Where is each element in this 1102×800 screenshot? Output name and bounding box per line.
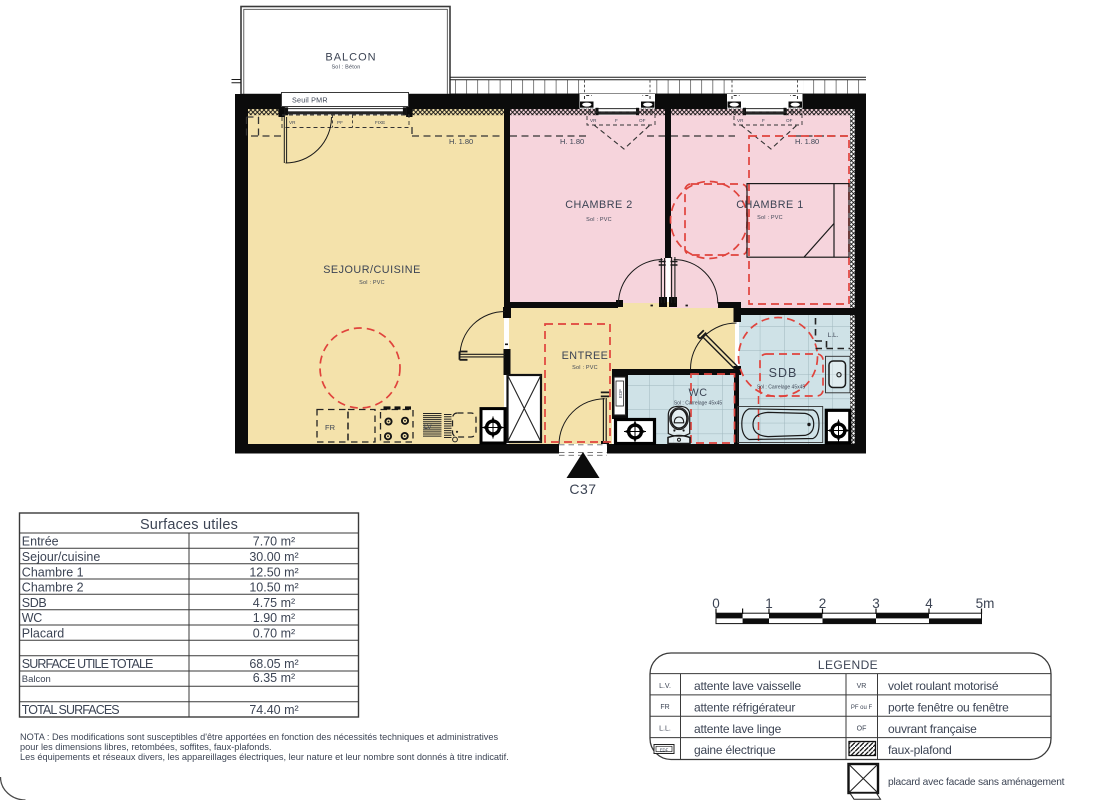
svg-text:attente réfrigérateur: attente réfrigérateur <box>694 701 795 715</box>
svg-text:Entrée: Entrée <box>22 535 59 549</box>
svg-text:BALCON: BALCON <box>325 52 376 64</box>
svg-text:Sol : PVC: Sol : PVC <box>359 280 385 286</box>
svg-text:Balcon: Balcon <box>22 674 51 685</box>
svg-text:5m: 5m <box>976 596 995 611</box>
svg-text:placard avec facade sans aména: placard avec facade sans aménagement <box>888 777 1065 788</box>
svg-text:74.40 m²: 74.40 m² <box>249 703 298 717</box>
svg-text:L.L.: L.L. <box>659 726 671 733</box>
svg-text:VR: VR <box>590 118 597 123</box>
svg-text:NOTA : Des modifications sont: NOTA : Des modifications sont susceptibl… <box>20 732 498 742</box>
svg-text:H. 1.80: H. 1.80 <box>560 137 584 146</box>
svg-text:SURFACE UTILE TOTALE: SURFACE UTILE TOTALE <box>22 657 153 671</box>
svg-text:VR: VR <box>289 120 296 125</box>
svg-text:L.V.: L.V. <box>659 683 671 690</box>
svg-text:1.90 m²: 1.90 m² <box>253 611 295 625</box>
svg-text:EDF: EDF <box>618 389 623 398</box>
svg-text:VR: VR <box>737 118 744 123</box>
svg-text:H. 1.80: H. 1.80 <box>449 137 473 146</box>
svg-text:SDB: SDB <box>769 366 798 380</box>
svg-text:6.35 m²: 6.35 m² <box>253 671 295 685</box>
svg-text:SEJOUR/CUISINE: SEJOUR/CUISINE <box>323 264 421 276</box>
svg-text:4.75 m²: 4.75 m² <box>253 596 295 610</box>
svg-text:PF ou F: PF ou F <box>851 705 873 711</box>
svg-text:attente lave linge: attente lave linge <box>694 722 782 736</box>
svg-text:pour les dimensions libres, re: pour les dimensions libres, retombées, s… <box>20 742 272 752</box>
svg-text:Sejour/cuisine: Sejour/cuisine <box>22 550 101 564</box>
svg-text:LV: LV <box>424 424 432 431</box>
svg-text:LEGENDE: LEGENDE <box>818 658 878 672</box>
svg-text:Sol : PVC: Sol : PVC <box>572 365 598 371</box>
svg-text:WC: WC <box>22 611 42 625</box>
svg-text:Les équipements et réseaux div: Les équipements et réseaux divers, les a… <box>20 752 509 762</box>
svg-text:VR: VR <box>857 683 867 690</box>
svg-text:porte fenêtre ou fenêtre: porte fenêtre ou fenêtre <box>888 701 1009 715</box>
svg-text:Chambre 2: Chambre 2 <box>22 581 84 595</box>
svg-text:FR: FR <box>325 423 336 432</box>
svg-text:Seuil PMR: Seuil PMR <box>292 96 328 105</box>
svg-text:ENTREE: ENTREE <box>562 350 609 362</box>
svg-text:68.05 m²: 68.05 m² <box>249 657 298 671</box>
svg-text:30.00 m²: 30.00 m² <box>249 550 298 564</box>
svg-text:F: F <box>762 118 765 123</box>
svg-text:0.70 m²: 0.70 m² <box>253 627 295 641</box>
svg-text:Sol : Béton: Sol : Béton <box>331 65 360 71</box>
svg-text:OF: OF <box>639 118 646 123</box>
svg-text:C37: C37 <box>569 481 596 497</box>
svg-text:OF: OF <box>857 726 867 733</box>
svg-text:7.70 m²: 7.70 m² <box>253 535 295 549</box>
svg-text:OF: OF <box>786 118 793 123</box>
svg-text:ouvrant française: ouvrant française <box>888 722 977 736</box>
svg-text:Sol : PVC: Sol : PVC <box>757 215 783 221</box>
svg-text:Surfaces utiles: Surfaces utiles <box>140 517 238 533</box>
svg-text:gaine électrique: gaine électrique <box>694 743 776 757</box>
svg-text:12.50 m²: 12.50 m² <box>249 565 298 579</box>
svg-text:FR: FR <box>660 704 669 711</box>
svg-text:Sol : Carrelage 45x45: Sol : Carrelage 45x45 <box>674 401 723 407</box>
svg-text:faux-plafond: faux-plafond <box>888 743 952 757</box>
svg-text:EDF: EDF <box>660 748 669 753</box>
svg-text:Sol : Carrelage 45x45: Sol : Carrelage 45x45 <box>757 385 806 391</box>
svg-text:Chambre 1: Chambre 1 <box>22 565 84 579</box>
svg-text:attente lave vaisselle: attente lave vaisselle <box>694 679 802 693</box>
svg-text:WC: WC <box>689 387 708 399</box>
svg-text:L.L.: L.L. <box>828 332 839 339</box>
svg-text:Sol : PVC: Sol : PVC <box>586 217 612 223</box>
svg-text:PF: PF <box>337 120 343 125</box>
svg-text:CHAMBRE 1: CHAMBRE 1 <box>736 199 804 211</box>
svg-text:CHAMBRE 2: CHAMBRE 2 <box>565 199 633 211</box>
svg-text:FIXE: FIXE <box>375 120 385 125</box>
svg-text:volet roulant motorisé: volet roulant motorisé <box>888 679 999 693</box>
svg-text:10.50 m²: 10.50 m² <box>249 581 298 595</box>
svg-text:F: F <box>615 118 618 123</box>
svg-text:TOTAL SURFACES: TOTAL SURFACES <box>22 703 119 717</box>
svg-text:H. 1.80: H. 1.80 <box>795 137 819 146</box>
svg-text:SDB: SDB <box>22 596 47 610</box>
svg-text:Placard: Placard <box>22 627 64 641</box>
